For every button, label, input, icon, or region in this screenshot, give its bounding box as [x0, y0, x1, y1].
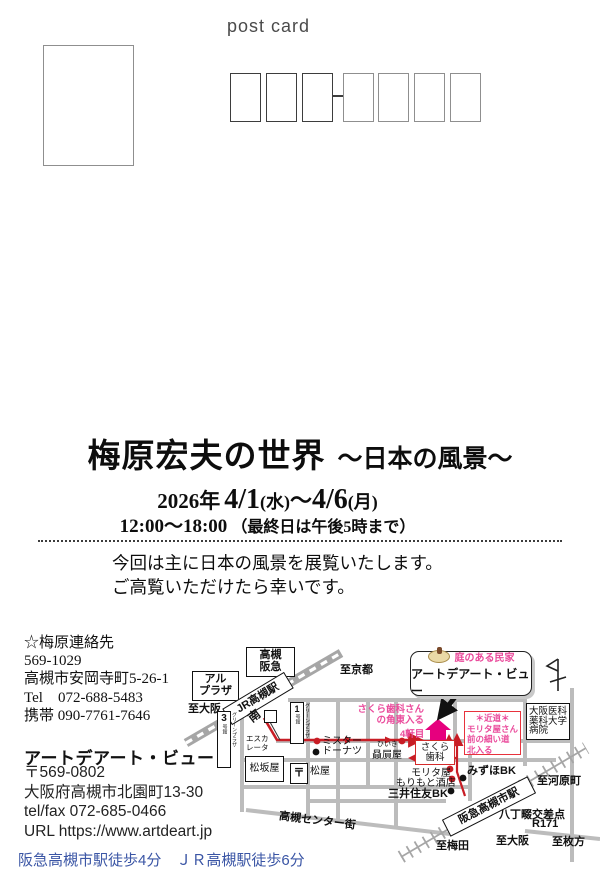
map-mister-donut: ミスタードーナツ: [322, 737, 362, 757]
map-post-office: 〒: [290, 763, 308, 784]
map-sakura-note: さくら歯科さんの角東入る: [352, 705, 424, 726]
map-to-kawaramachi: 至河原町: [537, 772, 581, 788]
north-flag-icon: [547, 659, 566, 691]
gallery-callout: 庭のある民家 アートデアート・ビュー: [410, 651, 532, 696]
callout-tag: 庭のある民家: [455, 649, 515, 664]
map-mizuho-bank: みずほBK: [467, 762, 516, 778]
map-mitsui-bank: 三井住友BK: [388, 785, 448, 801]
map-sakura-dental: さくら歯科: [415, 740, 455, 765]
map-greenplaza1: 1 号館: [290, 702, 304, 744]
map-r171: R171: [532, 818, 558, 830]
map-fourth-house: 4軒目: [400, 726, 424, 740]
map-hospital: 大阪医科薬科大学病院: [526, 703, 570, 740]
map-alplaza: アルプラザ: [192, 671, 239, 701]
map-matsuya: 松屋: [310, 762, 330, 777]
postcard-back: post card 梅原宏夫の世界 ～日本の風景～ 2026年 4/1(水)～4…: [0, 0, 600, 888]
map-greenplaza3-name: グリーンプラザ: [231, 712, 236, 764]
map-matsuzakaya: 松坂屋: [245, 756, 284, 782]
map-greenplaza3: 3 号館: [217, 711, 231, 768]
map-exit-square: [264, 710, 277, 723]
map-hiikiya: 贔屓屋: [372, 746, 402, 761]
map-shortcut-note: ＊近道＊ モリタ屋さん 前の細い道 北入る: [464, 711, 521, 755]
map-to-hirakata: 至枚方: [552, 833, 585, 849]
map-to-osaka-bottom: 至大阪: [496, 832, 529, 848]
callout-gallery-name: アートデアート・ビュー: [411, 665, 531, 699]
gallery-house-marker: [425, 719, 451, 740]
map-escalator: エスカレータ: [246, 735, 269, 752]
map-hankyu-dept-store: 高槻阪急: [246, 647, 295, 677]
map-greenplaza1-name: グリーンプラザ: [304, 703, 309, 741]
garden-icon: [428, 650, 450, 663]
map-to-umeda: 至梅田: [436, 837, 469, 853]
map-to-kyoto: 至京都: [340, 661, 373, 677]
